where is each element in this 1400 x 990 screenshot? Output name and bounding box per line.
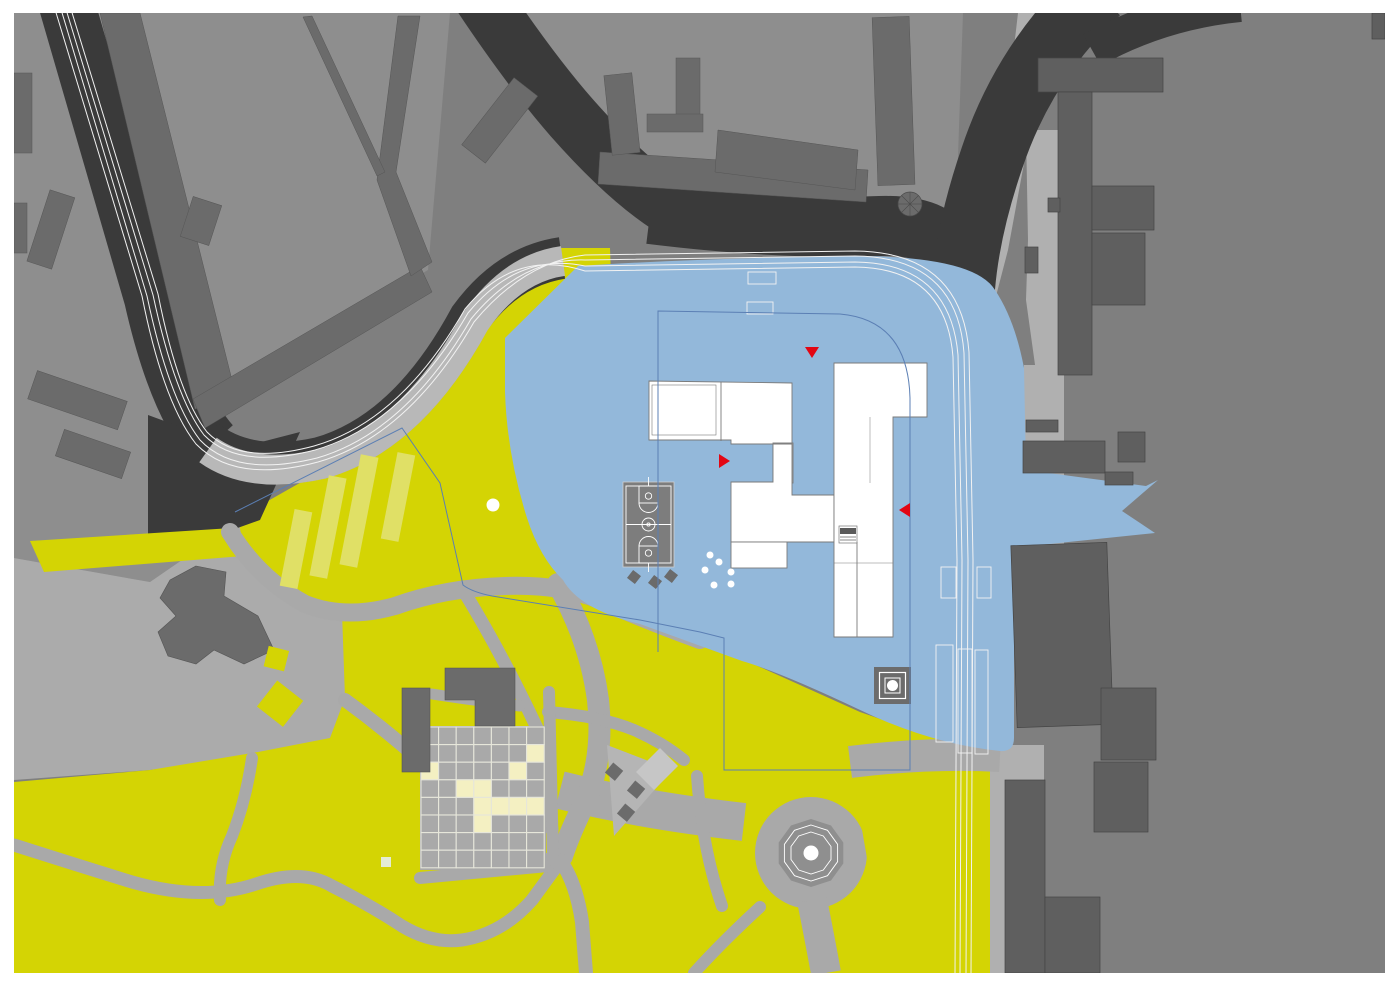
garden-plot [421,815,439,833]
school-annex [731,542,787,568]
garden-plot [421,780,439,798]
garden-plot [527,780,545,798]
corner-turret [898,192,922,216]
garden-plot [474,727,492,745]
pale-green-plot [381,857,391,867]
garden-plot [474,797,492,815]
garden-plot [456,833,474,851]
fountain-center [804,846,819,861]
tree-dot [702,567,709,574]
garden-plot [527,797,545,815]
basketball-court [623,477,674,572]
garden-plot [439,780,457,798]
garden-plot [474,780,492,798]
garden-plot [439,727,457,745]
garden-plot [474,745,492,763]
school-wing-northwest [649,381,792,444]
garden-plot [491,780,509,798]
site-plan-canvas [0,0,1400,990]
garden-plot [527,727,545,745]
garden-plot [439,833,457,851]
garden-plot [491,745,509,763]
garden-plot [456,745,474,763]
garden-plot [509,815,527,833]
tree-dot [711,582,718,589]
garden-plot [491,762,509,780]
garden-plot [439,745,457,763]
garden-plot [421,850,439,868]
grid-building-bar [402,688,430,772]
garden-plot [474,762,492,780]
garden-plot [527,745,545,763]
tree-dot [707,552,714,559]
garden-plot [527,815,545,833]
garden-plot [474,833,492,851]
garden-plot [509,780,527,798]
fountain [779,819,844,887]
garden-plot [509,727,527,745]
garden-plot [509,850,527,868]
garden-plot [491,797,509,815]
garden-plot [456,727,474,745]
garden-plot [527,850,545,868]
garden-plot [439,762,457,780]
site-plan-screenshot [0,0,1400,990]
garden-plot [491,727,509,745]
tree-dot [487,499,500,512]
garden-plot [509,745,527,763]
garden-plot [421,797,439,815]
garden-plot [509,762,527,780]
garden-plot [421,833,439,851]
garden-plot [456,797,474,815]
tree-dot [728,569,735,576]
garden-plot [456,850,474,868]
garden-plot [509,833,527,851]
garden-grid-cells [421,727,544,868]
tree-dot [716,559,723,566]
entrance-stairs [839,526,857,543]
garden-plot [474,850,492,868]
garden-plot [491,833,509,851]
garden-plot [527,833,545,851]
garden-plot [491,815,509,833]
garden-plot [439,850,457,868]
garden-plot [456,815,474,833]
garden-plot [439,815,457,833]
garden-plot [509,797,527,815]
garden-plot [527,762,545,780]
garden-plot [456,762,474,780]
garden-plot [439,797,457,815]
tree-dot [728,581,735,588]
monument [874,667,911,704]
garden-plot [456,780,474,798]
garden-plot [491,850,509,868]
garden-plot [474,815,492,833]
